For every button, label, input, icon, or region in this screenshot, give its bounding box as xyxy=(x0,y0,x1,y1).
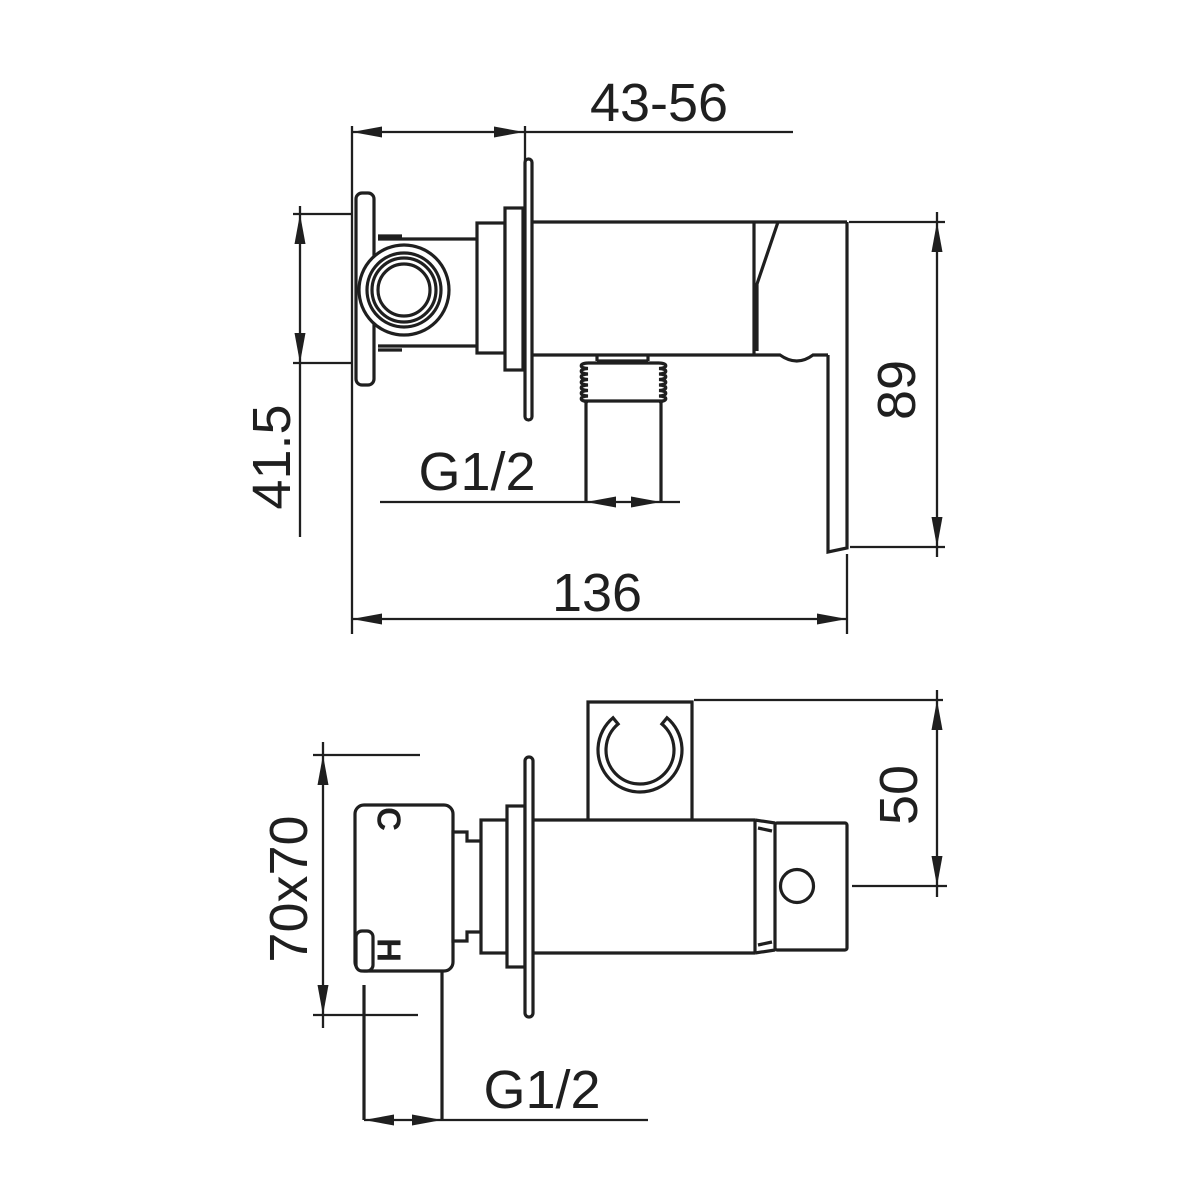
dim-outlet-thread: G1/2 xyxy=(380,442,680,508)
dim-inlet-center-height-label: 41.5 xyxy=(242,404,302,509)
holder-clip-ring xyxy=(598,718,682,792)
dim-arrow xyxy=(352,614,382,625)
dim-depth-range-label: 43-56 xyxy=(590,73,728,133)
dim-holder-offset-label: 50 xyxy=(869,765,929,825)
dim-body-handle-height: 89 xyxy=(849,212,945,557)
plan-view: C H 70x70 50 G1/2 xyxy=(259,690,947,1126)
box-step-neck xyxy=(453,832,481,941)
dim-inlet-center-height: 41.5 xyxy=(242,206,352,537)
dim-inlet-thread-label: G1/2 xyxy=(483,1060,600,1120)
pivot-button xyxy=(781,870,814,903)
dim-arrow xyxy=(494,127,524,138)
dim-overall-length: 136 xyxy=(352,554,847,634)
drawing-canvas: 43-56 41.5 G1/2 136 xyxy=(0,0,1200,1200)
dim-arrow xyxy=(295,333,306,363)
technical-drawing: 43-56 41.5 G1/2 136 xyxy=(0,0,1200,1200)
dim-arrow xyxy=(364,1115,394,1126)
dim-arrow xyxy=(352,127,382,138)
hot-port-tab xyxy=(356,931,373,971)
dim-wall-plate-size-label: 70x70 xyxy=(259,815,319,962)
port-hot-label: H xyxy=(371,938,408,962)
escutcheon-plate-plan xyxy=(525,757,533,1017)
dim-body-handle-height-label: 89 xyxy=(867,360,927,420)
inlet-port-tube xyxy=(364,971,442,1120)
valve-cartridge-circles xyxy=(359,245,449,335)
dim-arrow xyxy=(932,517,943,547)
plan-flange-inner xyxy=(481,820,507,953)
handset-holder xyxy=(588,702,692,820)
handle-cap-plan xyxy=(755,820,847,953)
dim-inlet-thread: G1/2 xyxy=(364,1060,648,1126)
dim-arrow xyxy=(932,222,943,252)
dim-arrow xyxy=(932,856,943,886)
dim-arrow xyxy=(817,614,847,625)
port-cold-label: C xyxy=(371,807,408,831)
dim-overall-length-label: 136 xyxy=(552,563,642,623)
plan-flange-outer xyxy=(507,806,525,967)
dim-arrow xyxy=(932,700,943,730)
dim-arrow xyxy=(318,985,329,1015)
dim-outlet-thread-label: G1/2 xyxy=(418,442,535,502)
body-cylinder-plan xyxy=(533,820,755,953)
dim-arrow xyxy=(318,755,329,785)
dim-arrow xyxy=(631,497,661,508)
mounting-flange-inner xyxy=(477,223,505,353)
escutcheon-plate-side xyxy=(525,159,532,420)
thread-ribs-right xyxy=(659,363,666,402)
hose-outlet-nipple xyxy=(581,355,666,503)
dim-arrow xyxy=(412,1115,442,1126)
side-view: 43-56 41.5 G1/2 136 xyxy=(242,73,945,634)
mounting-flange-outer xyxy=(505,208,523,370)
body-cylinder-side xyxy=(532,222,847,361)
thread-ribs-left xyxy=(581,363,588,402)
dim-arrow xyxy=(295,214,306,244)
dim-arrow xyxy=(586,497,616,508)
handle-lever-side xyxy=(757,222,847,552)
